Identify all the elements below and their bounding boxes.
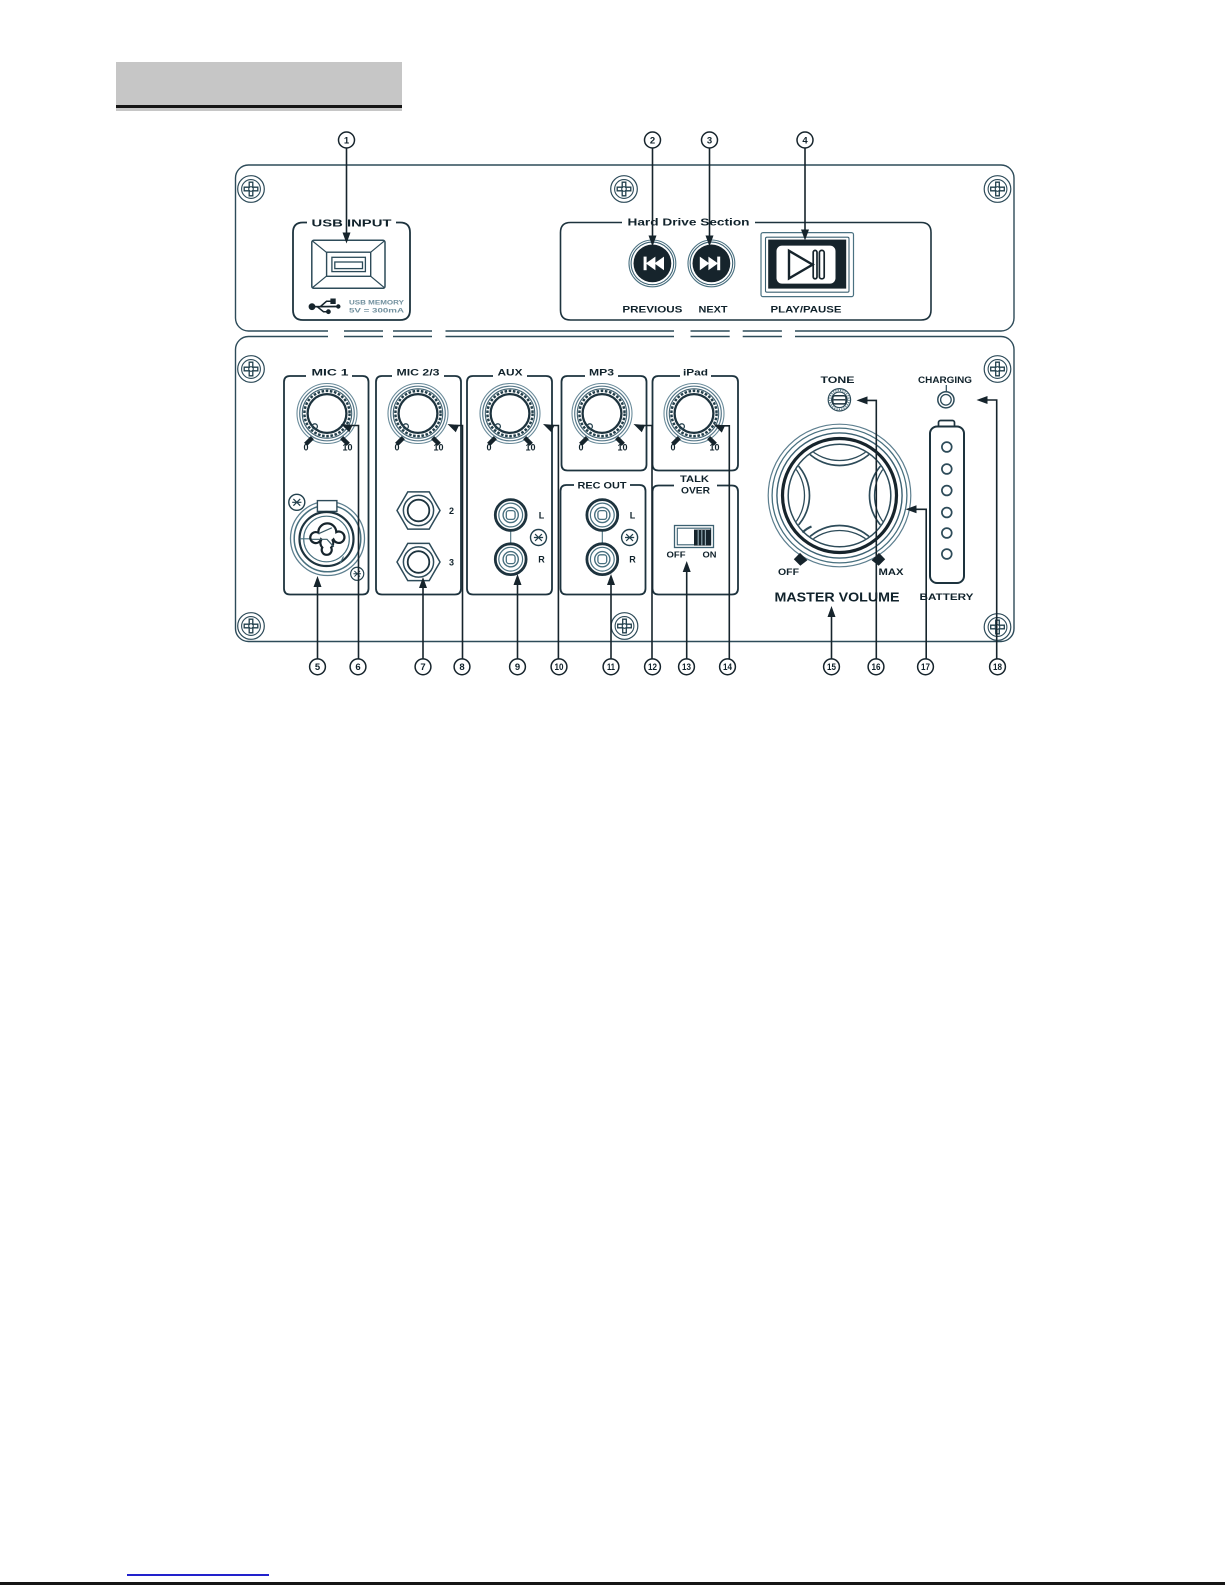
svg-text:8: 8	[459, 662, 464, 673]
svg-text:14: 14	[723, 662, 733, 673]
svg-text:18: 18	[993, 662, 1002, 673]
svg-text:L: L	[539, 511, 545, 521]
svg-text:2: 2	[650, 135, 655, 146]
svg-text:L: L	[630, 511, 636, 521]
svg-text:9: 9	[515, 662, 520, 673]
svg-text:MIC 2/3: MIC 2/3	[397, 368, 440, 378]
svg-text:REC OUT: REC OUT	[578, 481, 628, 491]
svg-text:0: 0	[578, 443, 583, 453]
svg-text:10: 10	[525, 443, 535, 453]
svg-text:5V = 300mA: 5V = 300mA	[349, 308, 405, 315]
svg-text:15: 15	[827, 662, 837, 673]
svg-text:MASTER VOLUME: MASTER VOLUME	[775, 590, 900, 605]
svg-text:ON: ON	[703, 550, 717, 560]
svg-text:iPad: iPad	[683, 368, 708, 378]
svg-text:17: 17	[921, 662, 930, 673]
svg-text:0: 0	[303, 443, 308, 453]
svg-text:0: 0	[394, 443, 399, 453]
svg-text:TALK: TALK	[680, 474, 709, 485]
svg-text:0: 0	[486, 443, 491, 453]
svg-text:4: 4	[802, 135, 808, 146]
svg-text:6: 6	[355, 662, 360, 673]
svg-text:R: R	[629, 555, 636, 565]
svg-text:3: 3	[707, 135, 712, 146]
svg-text:CHARGING: CHARGING	[918, 375, 972, 386]
svg-text:MP3: MP3	[589, 368, 614, 378]
svg-text:10: 10	[555, 662, 564, 673]
svg-text:BATTERY: BATTERY	[920, 592, 975, 603]
svg-text:7: 7	[420, 662, 425, 673]
svg-text:13: 13	[682, 662, 691, 673]
svg-text:MAX: MAX	[879, 567, 905, 578]
svg-text:AUX: AUX	[498, 368, 523, 378]
svg-text:1: 1	[344, 135, 350, 146]
svg-text:10: 10	[433, 443, 443, 453]
svg-text:PLAY/PAUSE: PLAY/PAUSE	[771, 305, 842, 315]
svg-text:0: 0	[670, 443, 675, 453]
svg-text:3: 3	[449, 558, 454, 568]
svg-text:NEXT: NEXT	[699, 305, 729, 315]
svg-text:USB INPUT: USB INPUT	[312, 219, 392, 230]
svg-text:Hard Drive Section: Hard Drive Section	[628, 218, 750, 229]
svg-text:OFF: OFF	[778, 567, 799, 578]
svg-text:10: 10	[617, 443, 627, 453]
svg-text:16: 16	[872, 662, 881, 673]
svg-text:MIC 1: MIC 1	[312, 368, 349, 378]
svg-text:2: 2	[449, 506, 454, 516]
svg-text:11: 11	[607, 662, 616, 673]
svg-text:10: 10	[342, 443, 352, 453]
svg-text:5: 5	[315, 662, 321, 673]
svg-text:10: 10	[709, 443, 719, 453]
svg-text:R: R	[538, 555, 545, 565]
svg-text:OVER: OVER	[681, 486, 710, 497]
svg-text:PREVIOUS: PREVIOUS	[622, 305, 682, 315]
svg-text:TONE: TONE	[821, 375, 855, 386]
svg-text:USB MEMORY: USB MEMORY	[349, 300, 405, 307]
svg-text:12: 12	[648, 662, 657, 673]
svg-text:OFF: OFF	[667, 550, 686, 560]
